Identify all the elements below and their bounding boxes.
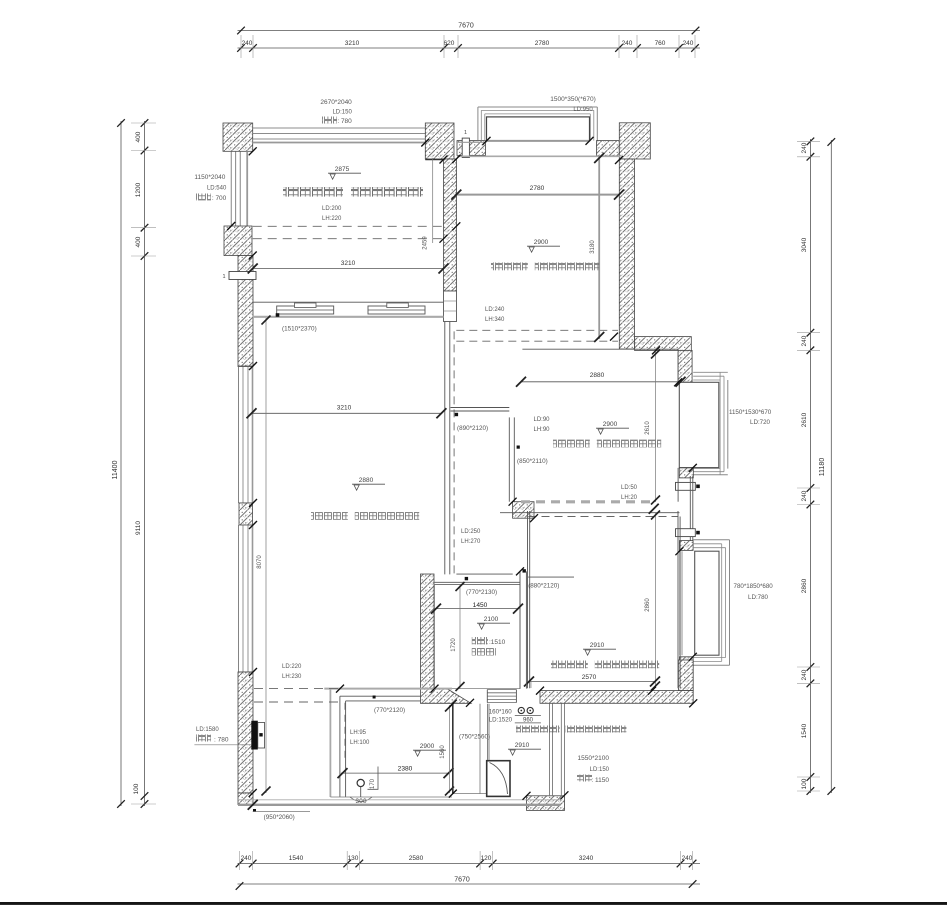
svg-text:LD:1520: LD:1520	[489, 717, 513, 724]
svg-text:1200: 1200	[135, 182, 142, 197]
svg-text:760: 760	[655, 40, 666, 47]
svg-text:(850*2110): (850*2110)	[517, 458, 548, 465]
svg-text:7670: 7670	[458, 23, 474, 30]
svg-text:11400: 11400	[112, 460, 119, 479]
svg-text:780*1850*680: 780*1850*680	[734, 583, 774, 590]
svg-text:400: 400	[135, 236, 142, 247]
svg-text:2910: 2910	[590, 642, 605, 649]
svg-text:2570: 2570	[582, 674, 597, 681]
svg-text:240: 240	[683, 40, 694, 47]
svg-text:LH:20: LH:20	[621, 495, 638, 501]
svg-text:: 700: : 700	[212, 195, 227, 202]
svg-text:: 1150: : 1150	[591, 777, 609, 784]
svg-text:240: 240	[801, 335, 808, 346]
svg-text:2780: 2780	[535, 40, 550, 47]
svg-text:2780: 2780	[530, 185, 545, 192]
svg-text:2580: 2580	[409, 855, 424, 862]
svg-text:: 780: : 780	[214, 737, 229, 744]
svg-text:2860: 2860	[645, 598, 651, 612]
svg-text:: 780: : 780	[337, 118, 352, 125]
svg-text:3180: 3180	[590, 240, 596, 254]
svg-text:LD:220: LD:220	[282, 664, 302, 670]
svg-text:2610: 2610	[645, 421, 651, 435]
svg-text:7670: 7670	[454, 877, 470, 884]
svg-text:240: 240	[241, 855, 252, 862]
svg-text:1560: 1560	[440, 745, 446, 759]
svg-text:3210: 3210	[337, 405, 352, 412]
svg-text:100: 100	[801, 778, 808, 789]
svg-text:LH:90: LH:90	[534, 427, 551, 433]
svg-text:3240: 3240	[579, 855, 594, 862]
svg-text:2875: 2875	[335, 166, 350, 173]
svg-text:(1510*2370): (1510*2370)	[282, 326, 317, 333]
svg-text:2670*2040: 2670*2040	[320, 99, 352, 106]
svg-text:8070: 8070	[257, 555, 263, 569]
svg-text:120: 120	[481, 855, 492, 862]
svg-text:LD:1580: LD:1580	[196, 727, 219, 733]
svg-text:(950*2060): (950*2060)	[264, 814, 295, 821]
svg-text:2860: 2860	[801, 578, 808, 593]
svg-text:170: 170	[370, 778, 376, 789]
svg-text:LD:50: LD:50	[621, 485, 638, 491]
svg-text:2610: 2610	[801, 412, 808, 427]
svg-text::1510: :1510	[489, 639, 506, 646]
svg-text:2900: 2900	[420, 743, 435, 750]
svg-text:2100: 2100	[484, 616, 499, 623]
svg-text:LD:240: LD:240	[485, 307, 505, 313]
svg-text:(770*2120): (770*2120)	[374, 707, 405, 714]
svg-text:LD:780: LD:780	[748, 594, 769, 601]
svg-text:3210: 3210	[341, 260, 356, 267]
svg-text:LD:90: LD:90	[534, 417, 551, 423]
svg-text:(880*2120): (880*2120)	[528, 583, 559, 590]
svg-text:LD:250: LD:250	[461, 529, 481, 535]
svg-text:1540: 1540	[801, 723, 808, 738]
svg-text:1450: 1450	[473, 602, 488, 609]
svg-text:(770*2130): (770*2130)	[466, 589, 497, 596]
svg-text:1150*2040: 1150*2040	[194, 174, 225, 181]
svg-text:240: 240	[242, 40, 253, 47]
svg-text:LD:540: LD:540	[207, 186, 227, 192]
svg-text:1540: 1540	[289, 855, 304, 862]
svg-text:11180: 11180	[819, 458, 826, 477]
svg-text:LH:100: LH:100	[350, 740, 370, 746]
svg-text:LH:230: LH:230	[282, 674, 302, 680]
svg-text:160*160: 160*160	[489, 709, 513, 716]
svg-text:1: 1	[464, 130, 467, 136]
svg-text:LD:720: LD:720	[750, 419, 771, 426]
svg-text:240: 240	[682, 855, 693, 862]
svg-text:1550*2100: 1550*2100	[578, 755, 610, 762]
svg-text:960: 960	[523, 718, 534, 724]
svg-text:1500*350(*670): 1500*350(*670)	[550, 96, 596, 103]
svg-text:2459: 2459	[423, 236, 429, 250]
svg-text:LH:270: LH:270	[461, 539, 481, 545]
svg-text:(890*2120): (890*2120)	[457, 425, 488, 432]
svg-text:9110: 9110	[135, 521, 142, 535]
svg-text:LH:95: LH:95	[350, 730, 367, 736]
svg-text:240: 240	[622, 40, 633, 47]
svg-text:240: 240	[801, 490, 808, 501]
svg-text:130: 130	[348, 855, 359, 862]
svg-text:620: 620	[444, 40, 455, 47]
svg-text:1150*1530*670: 1150*1530*670	[729, 409, 772, 416]
svg-text:2380: 2380	[398, 766, 413, 773]
svg-text:LD:150: LD:150	[332, 110, 352, 116]
svg-text:240: 240	[801, 669, 808, 680]
svg-text:LD:950: LD:950	[573, 107, 593, 113]
svg-text:(750*2560): (750*2560)	[459, 734, 490, 741]
svg-text:LD:150: LD:150	[590, 767, 610, 773]
svg-text:2910: 2910	[515, 742, 530, 749]
svg-text:LD:200: LD:200	[322, 206, 342, 212]
svg-text:2880: 2880	[590, 372, 605, 379]
svg-text:3210: 3210	[345, 40, 360, 47]
svg-text:240: 240	[801, 142, 808, 153]
svg-text:2900: 2900	[603, 421, 618, 428]
svg-text:LH:220: LH:220	[322, 216, 342, 222]
svg-text:100: 100	[133, 783, 140, 794]
svg-text:2880: 2880	[359, 477, 374, 484]
svg-text:LH:340: LH:340	[485, 317, 505, 323]
svg-text:1: 1	[222, 274, 225, 280]
svg-text:400: 400	[135, 131, 142, 142]
svg-text:2900: 2900	[534, 239, 549, 246]
svg-text:1720: 1720	[451, 638, 457, 652]
svg-text:3040: 3040	[801, 237, 808, 252]
